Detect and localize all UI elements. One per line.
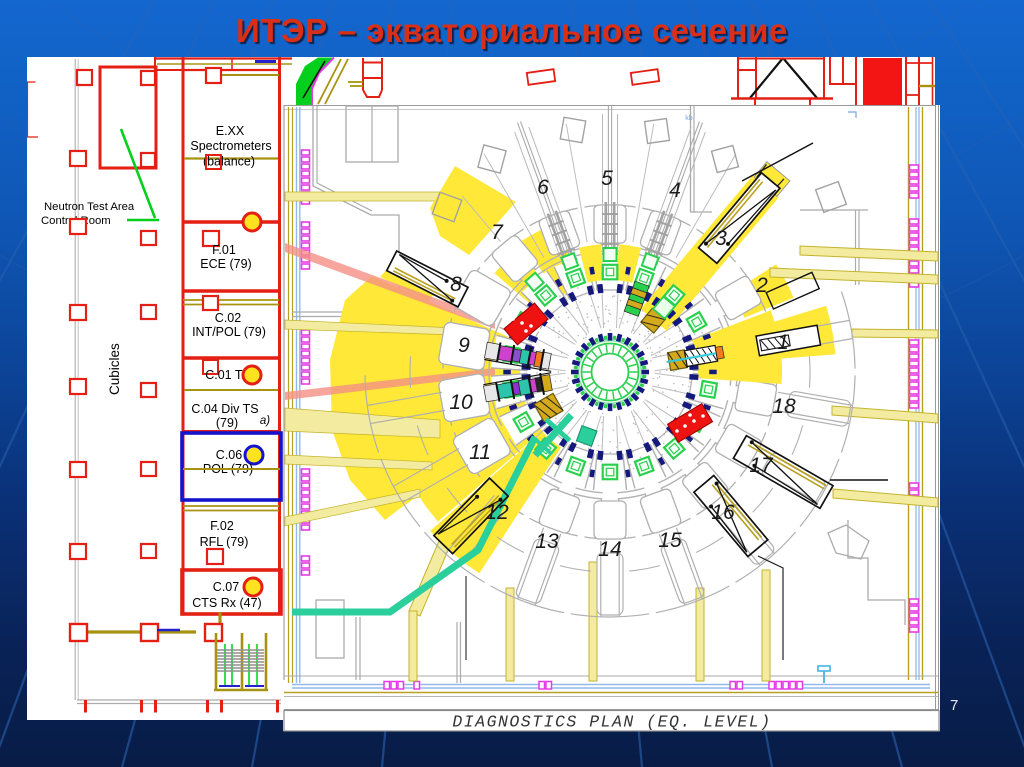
svg-text:DIAGNOSTICS PLAN (EQ. LEVEL): DIAGNOSTICS PLAN (EQ. LEVEL) [452, 713, 771, 732]
svg-text:kb: kb [685, 115, 693, 122]
svg-text:5: 5 [601, 167, 613, 190]
svg-text:C.06: C.06 [216, 448, 242, 462]
svg-text:1: 1 [777, 331, 789, 354]
svg-text:15: 15 [658, 529, 682, 552]
svg-text:F.01: F.01 [212, 243, 236, 257]
svg-text:4: 4 [669, 179, 681, 202]
svg-text:18: 18 [772, 395, 796, 418]
svg-text:E.XX: E.XX [216, 124, 245, 138]
svg-text:8: 8 [450, 273, 462, 296]
svg-text:17: 17 [749, 454, 774, 477]
svg-text:INT/POL (79): INT/POL (79) [192, 325, 266, 339]
svg-text:a): a) [260, 415, 270, 427]
svg-text:3: 3 [715, 227, 727, 250]
svg-text:12: 12 [485, 501, 509, 524]
svg-text:C.02: C.02 [215, 311, 241, 325]
svg-text:Spectrometers: Spectrometers [190, 139, 271, 153]
svg-text:(balance): (balance) [203, 155, 255, 169]
svg-text:10: 10 [449, 391, 473, 414]
svg-text:14: 14 [598, 538, 621, 561]
svg-text:11: 11 [469, 441, 491, 464]
svg-text:6: 6 [537, 176, 549, 199]
svg-text:Neutron Test Area: Neutron Test Area [44, 201, 135, 213]
svg-text:7: 7 [491, 221, 504, 244]
svg-text:RFL (79): RFL (79) [200, 535, 249, 549]
svg-text:C.04 Div TS: C.04 Div TS [191, 402, 258, 416]
svg-text:C.07: C.07 [213, 580, 239, 594]
svg-text:F.02: F.02 [210, 519, 234, 533]
svg-text:ECE (79): ECE (79) [200, 257, 251, 271]
svg-text:Cubicles: Cubicles [107, 343, 122, 395]
svg-text:16: 16 [711, 501, 735, 524]
svg-text:13: 13 [535, 530, 559, 553]
svg-text:9: 9 [458, 334, 470, 357]
svg-text:2: 2 [755, 274, 768, 297]
svg-text:(79): (79) [216, 416, 238, 430]
svg-text:CTS Rx (47): CTS Rx (47) [192, 596, 261, 610]
